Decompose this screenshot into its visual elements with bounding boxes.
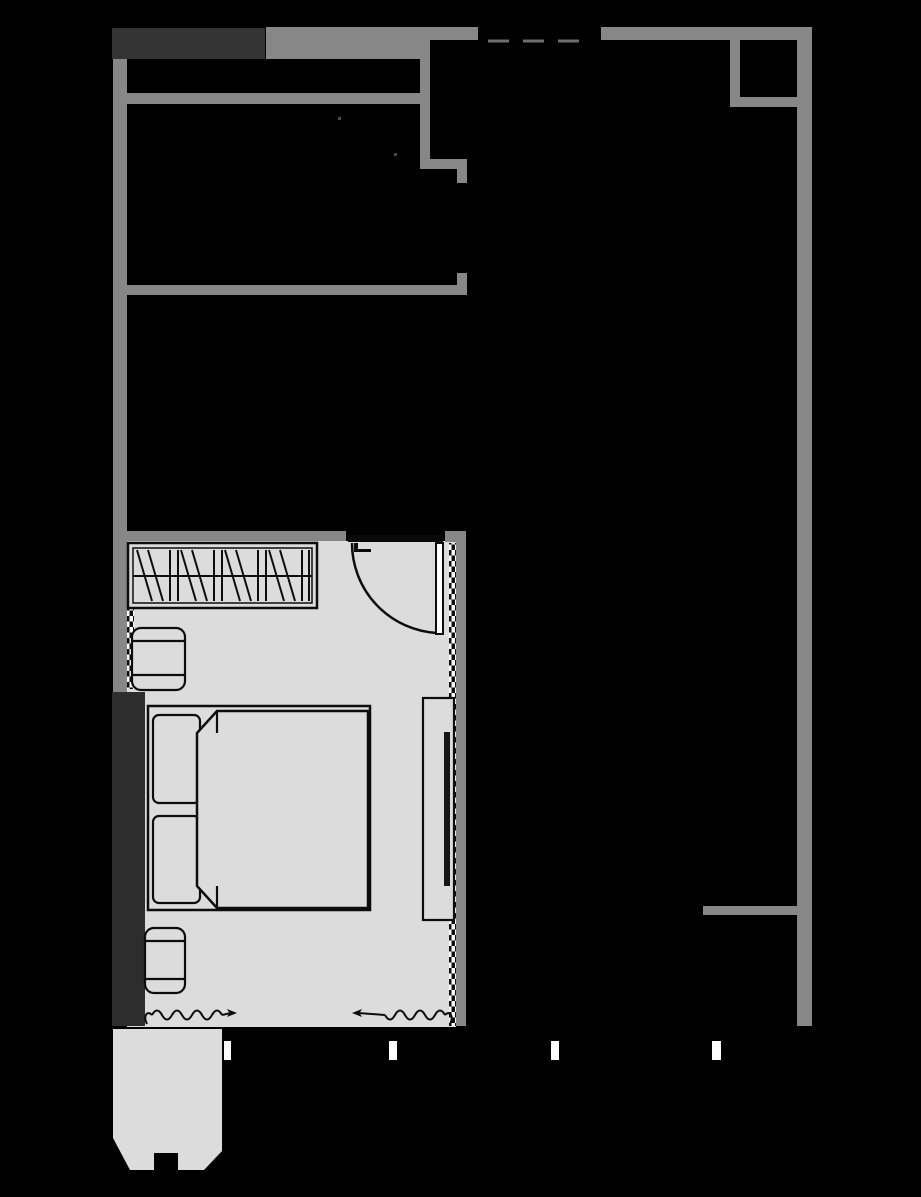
left-exterior-wall — [113, 59, 127, 692]
niche-vertical-stub — [730, 40, 740, 100]
balcony-floor — [113, 1029, 222, 1170]
duvet-with-folded-corners — [197, 711, 368, 908]
top-wall-left-of-gap — [430, 27, 478, 40]
pillow-bottom — [153, 816, 200, 903]
upper-horizontal-wall — [127, 93, 421, 104]
top-gray-wall-block — [266, 27, 420, 59]
grid-ticks — [224, 1041, 721, 1060]
wardrobe-with-hanger-symbols — [128, 543, 317, 608]
floor-plan-drawing — [0, 0, 921, 1197]
door-lintel — [348, 535, 443, 542]
right-stub-wall — [703, 906, 797, 915]
tv-panel — [444, 732, 450, 886]
open-door-leaf — [436, 543, 443, 634]
bath-door-stub-upper — [457, 169, 467, 183]
bath-jog-wall — [420, 159, 467, 169]
top-right-exterior-wall — [601, 27, 798, 40]
middle-horizontal-wall — [127, 285, 467, 295]
grid-tick — [712, 1041, 721, 1060]
bedroom-right-wall — [456, 531, 466, 1026]
dark-wall-pier — [112, 692, 145, 1026]
grid-tick — [551, 1041, 559, 1060]
double-bed — [148, 706, 370, 910]
bedroom-top-wall — [113, 531, 346, 541]
nightstand-upper — [132, 628, 185, 690]
grid-tick — [389, 1041, 397, 1060]
grid-tick — [224, 1041, 231, 1060]
niche-horizontal-stub — [730, 97, 797, 107]
floor-plan-canvas — [0, 0, 921, 1197]
nightstand-lower — [145, 928, 185, 993]
tv-console — [423, 698, 454, 920]
right-exterior-wall — [797, 27, 812, 1026]
dark-party-wall-block — [112, 28, 265, 59]
plan-specks — [338, 117, 397, 156]
bath-vertical-wall — [420, 27, 430, 168]
pillow-top — [153, 715, 200, 803]
